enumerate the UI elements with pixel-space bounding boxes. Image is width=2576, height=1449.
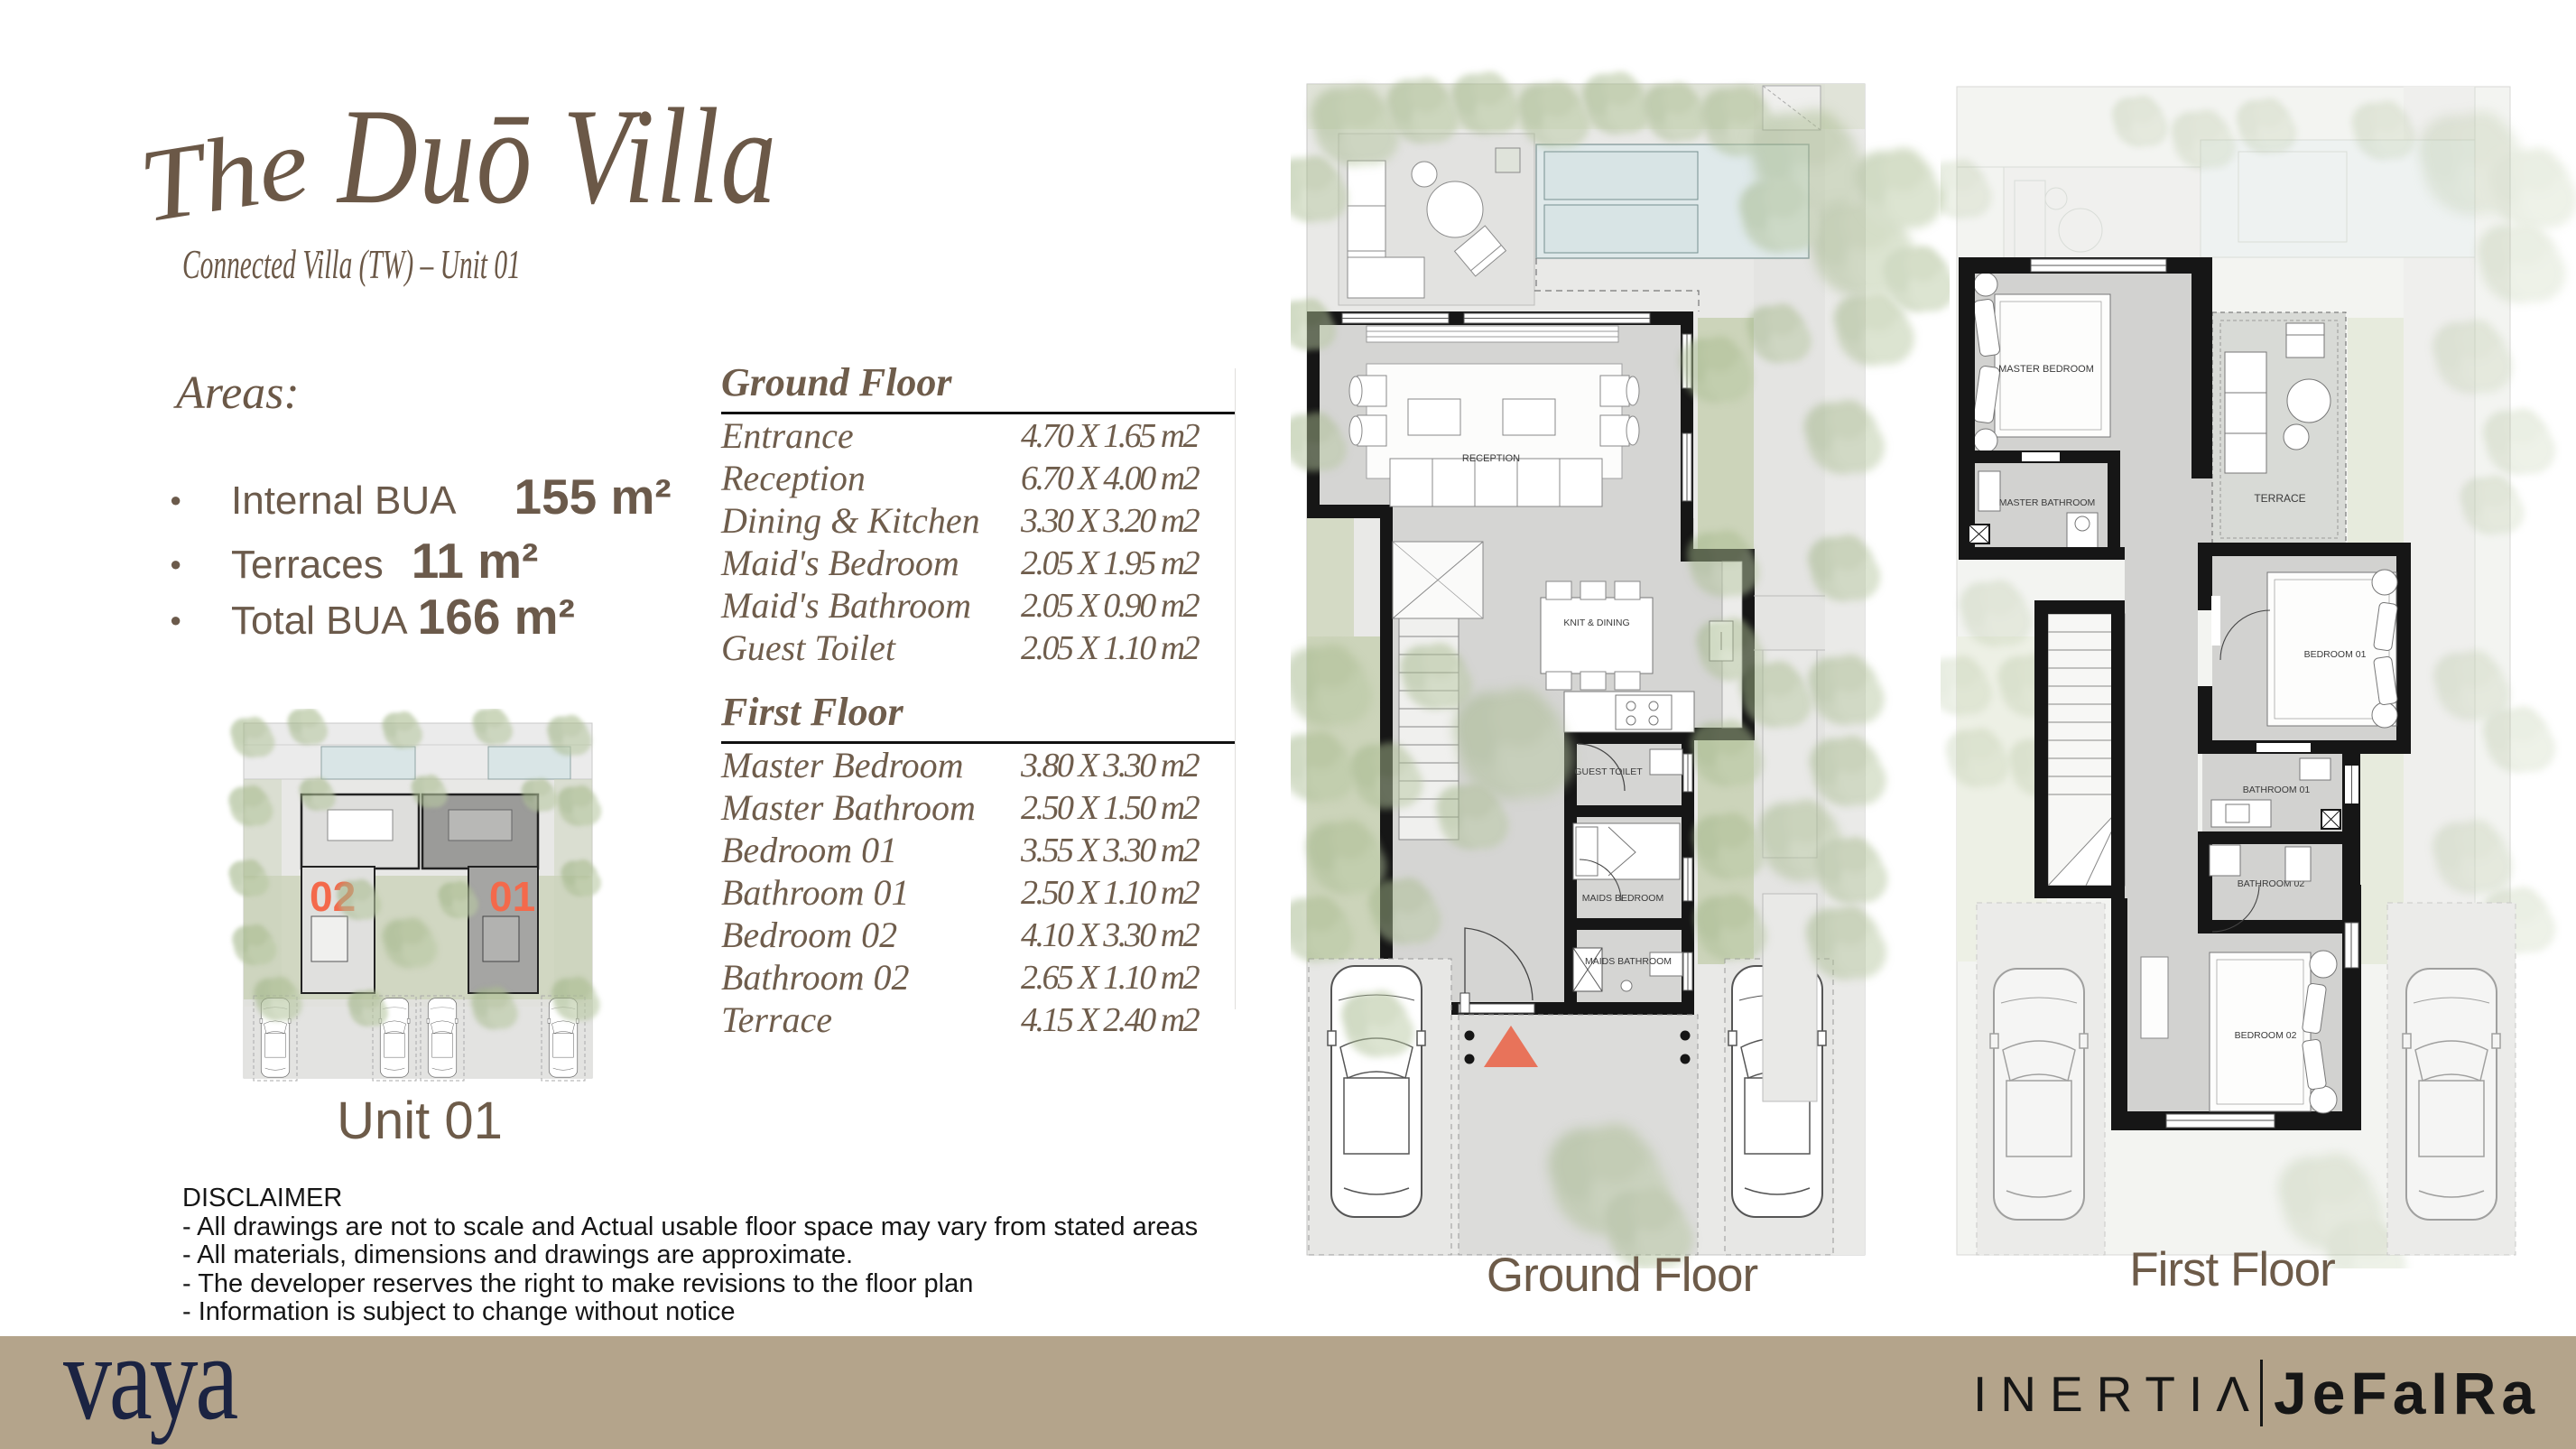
- svg-text:MASTER BATHROOM: MASTER BATHROOM: [1999, 497, 2096, 508]
- svg-text:GUEST TOILET: GUEST TOILET: [1574, 766, 1643, 777]
- svg-text:BEDROOM 02: BEDROOM 02: [2235, 1030, 2297, 1041]
- svg-text:MASTER BEDROOM: MASTER BEDROOM: [1998, 364, 2094, 375]
- svg-text:MAIDS BATHROOM: MAIDS BATHROOM: [1585, 956, 1672, 967]
- svg-text:KNIT & DINING: KNIT & DINING: [1563, 618, 1629, 628]
- svg-text:MAIDS BEDROOM: MAIDS BEDROOM: [1582, 893, 1663, 904]
- svg-text:RECEPTION: RECEPTION: [1462, 453, 1520, 464]
- svg-text:BEDROOM 01: BEDROOM 01: [2304, 649, 2367, 660]
- svg-text:TERRACE: TERRACE: [2254, 492, 2305, 505]
- svg-text:01: 01: [489, 873, 535, 920]
- svg-text:BATHROOM 01: BATHROOM 01: [2243, 785, 2311, 795]
